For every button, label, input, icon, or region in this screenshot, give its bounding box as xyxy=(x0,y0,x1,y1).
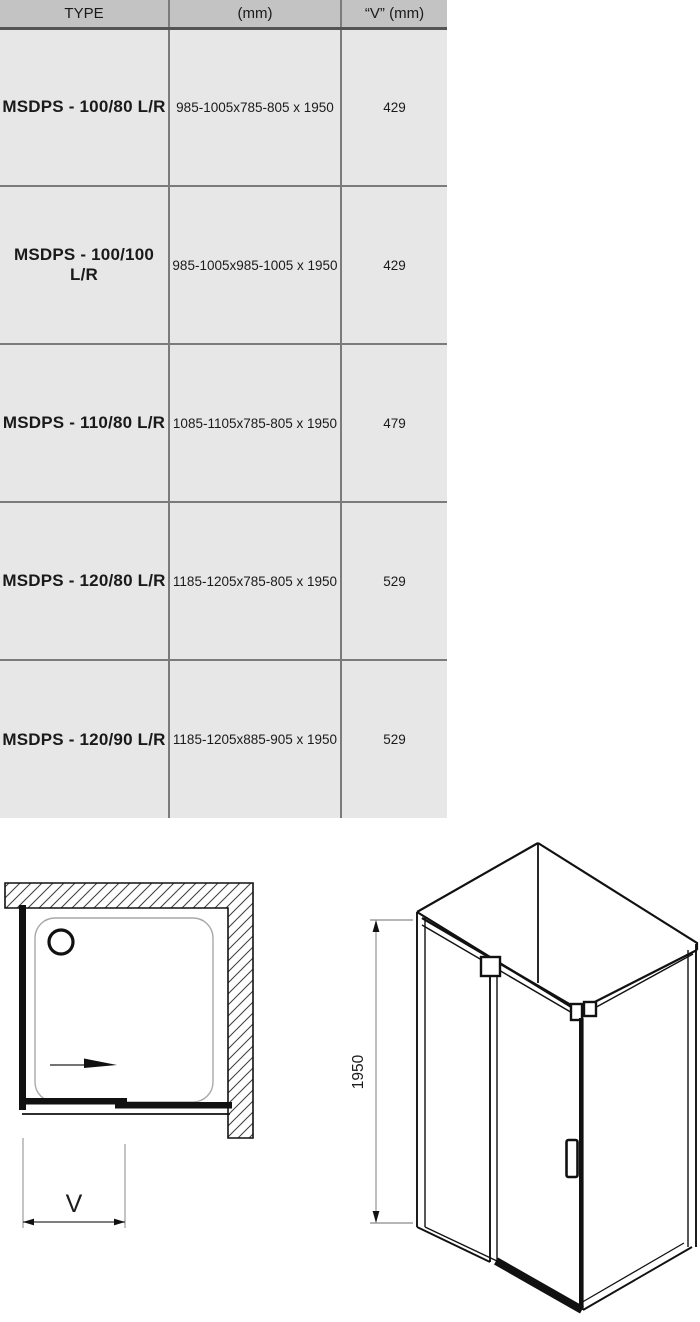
table-row: MSDPS - 120/90 L/R 1185-1205x885-905 x 1… xyxy=(0,660,447,818)
bottom-edge-fixed-left-inner xyxy=(425,1227,497,1261)
drain-icon xyxy=(49,930,73,954)
corner-block xyxy=(584,1002,596,1016)
iso-view-diagram: 1950 xyxy=(350,840,700,1322)
table-header: TYPE (mm) “V” (mm) xyxy=(0,0,447,28)
fixed-panel-profile xyxy=(19,905,26,1110)
table-body: MSDPS - 100/80 L/R 985-1005x785-805 x 19… xyxy=(0,28,447,818)
top-edge-back-right xyxy=(538,843,697,950)
dimensions-cell: 985-1005x985-1005 x 1950 xyxy=(169,186,341,344)
roller-bracket xyxy=(481,957,500,976)
table-row: MSDPS - 100/100 L/R 985-1005x985-1005 x … xyxy=(0,186,447,344)
dim-arrow-up xyxy=(373,920,380,932)
bottom-edge-fixed-left xyxy=(417,1227,490,1262)
v-cell: 529 xyxy=(341,660,447,818)
table-row: MSDPS - 110/80 L/R 1085-1105x785-805 x 1… xyxy=(0,344,447,502)
bottom-edge-right xyxy=(583,1247,692,1310)
dim-arrow-right xyxy=(114,1219,125,1226)
col-header-type: TYPE xyxy=(0,0,169,28)
spec-table-container: TYPE (mm) “V” (mm) MSDPS - 100/80 L/R 98… xyxy=(0,0,447,818)
dimensions-cell: 985-1005x785-805 x 1950 xyxy=(169,28,341,186)
sliding-door-segment xyxy=(115,1102,232,1109)
height-dimension-label: 1950 xyxy=(350,1054,367,1089)
type-cell: MSDPS - 100/80 L/R xyxy=(0,28,169,186)
dim-arrow-down xyxy=(373,1211,380,1223)
dimensions-cell: 1085-1105x785-805 x 1950 xyxy=(169,344,341,502)
top-view-drawing: V xyxy=(0,870,280,1240)
v-cell: 429 xyxy=(341,28,447,186)
dimensions-cell: 1185-1205x785-805 x 1950 xyxy=(169,502,341,660)
dimensions-cell: 1185-1205x885-905 x 1950 xyxy=(169,660,341,818)
spec-table: TYPE (mm) “V” (mm) MSDPS - 100/80 L/R 98… xyxy=(0,0,447,818)
type-cell: MSDPS - 100/100 L/R xyxy=(0,186,169,344)
table-row: MSDPS - 120/80 L/R 1185-1205x785-805 x 1… xyxy=(0,502,447,660)
col-header-v: “V” (mm) xyxy=(341,0,447,28)
bottom-edge-right-inner xyxy=(579,1243,684,1304)
top-edge-back-left xyxy=(417,843,538,912)
table-row: MSDPS - 100/80 L/R 985-1005x785-805 x 19… xyxy=(0,28,447,186)
col-header-mm: (mm) xyxy=(169,0,341,28)
type-cell: MSDPS - 120/80 L/R xyxy=(0,502,169,660)
rail-end-block xyxy=(571,1004,582,1020)
iso-view-drawing: 1950 xyxy=(350,840,700,1317)
door-handle xyxy=(567,1140,578,1177)
fixed-segment xyxy=(19,1098,127,1105)
bottom-rail-door xyxy=(496,1261,582,1310)
door-edge-profile xyxy=(579,1018,584,1310)
v-cell: 529 xyxy=(341,502,447,660)
type-cell: MSDPS - 120/90 L/R xyxy=(0,660,169,818)
dim-arrow-left xyxy=(23,1219,34,1226)
page: { "table": { "columns": ["TYPE", "(mm)",… xyxy=(0,0,700,1317)
v-cell: 429 xyxy=(341,186,447,344)
type-cell: MSDPS - 110/80 L/R xyxy=(0,344,169,502)
v-dimension-label: V xyxy=(66,1190,83,1218)
v-cell: 479 xyxy=(341,344,447,502)
top-view-diagram: V xyxy=(0,870,280,1245)
header-row: TYPE (mm) “V” (mm) xyxy=(0,0,447,28)
